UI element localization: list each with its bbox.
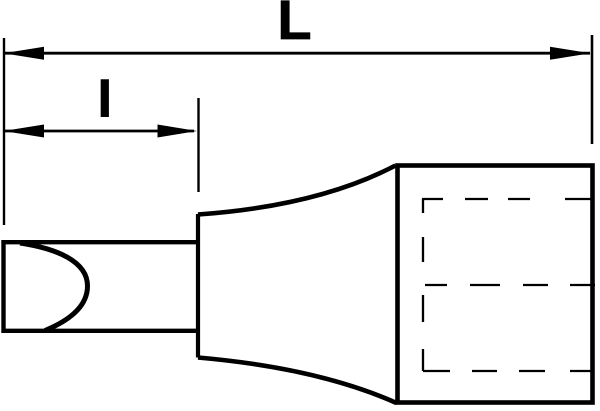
svg-text:l: l bbox=[98, 72, 112, 128]
svg-text:L: L bbox=[277, 0, 311, 51]
